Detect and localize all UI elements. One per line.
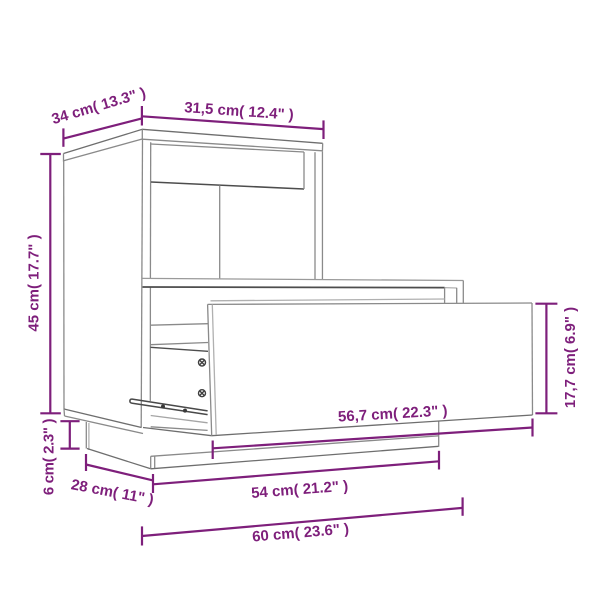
svg-text:17,7 cm( 6.9" ): 17,7 cm( 6.9" ) xyxy=(562,307,579,408)
svg-text:45 cm( 17.7" ): 45 cm( 17.7" ) xyxy=(26,234,43,331)
svg-text:6 cm( 2.3" ): 6 cm( 2.3" ) xyxy=(41,419,58,496)
